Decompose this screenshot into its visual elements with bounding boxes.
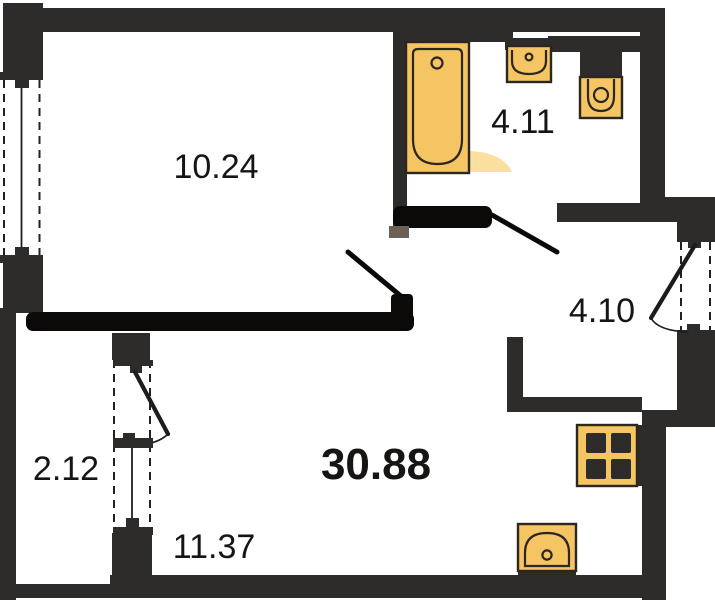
stove-icon [577, 425, 646, 486]
floor-plan: 10.24 4.11 4.10 2.12 11.37 30.88 [0, 0, 715, 600]
balcony-door-window-block [113, 360, 168, 535]
wall-bathroom-bottom-right [557, 203, 647, 222]
living-window [0, 72, 43, 263]
wall-balcony-partition-top-stub [112, 333, 150, 360]
stove-burner-3 [586, 459, 606, 479]
marker-annotations [26, 206, 557, 331]
living-bottom-wall-marker-bar [26, 312, 414, 331]
kitchen-sink-body [518, 524, 576, 571]
wash-basin-body [507, 46, 551, 82]
room-label-living: 10.24 [173, 148, 258, 186]
stove-burner-4 [611, 459, 631, 479]
room-label-bathroom: 4.11 [491, 103, 555, 141]
kitchen-sink-icon [518, 524, 576, 580]
stove-burner-2 [611, 433, 631, 453]
entrance-door [651, 241, 710, 332]
stove-burner-1 [586, 433, 606, 453]
wall-toilet-niche-top [548, 36, 648, 52]
total-area-label: 30.88 [321, 440, 431, 489]
wall-right-above-door [677, 220, 715, 242]
window-tab-bottom [15, 247, 29, 255]
toilet-tank [580, 50, 622, 78]
wall-balcony-partition-bottom-stub [112, 533, 152, 578]
wall-top-left-block [3, 3, 43, 73]
room-label-hallway: 4.10 [569, 292, 635, 330]
entrance-latch-tab [687, 324, 700, 332]
wall-balcony-bottom [0, 584, 114, 598]
wash-basin-icon [505, 38, 553, 82]
wall-hall-kitchen-horizontal [507, 397, 642, 412]
wall-bathroom-top [395, 30, 513, 42]
living-door-leaf-marker [348, 252, 402, 297]
bathtub-shadow-blob [468, 151, 512, 172]
balcony-door-head-plate [113, 360, 153, 366]
wall-right-below-door [677, 330, 715, 427]
toilet-icon [580, 50, 622, 118]
balcony-window-bottom-plate [113, 527, 153, 535]
room-label-kitchen: 11.37 [173, 528, 256, 566]
floor-plan-canvas: 10.24 4.11 4.10 2.12 11.37 30.88 [0, 0, 715, 600]
window-tab-top [15, 80, 29, 88]
balcony-door-leaf [135, 372, 168, 434]
entrance-door-leaf [651, 245, 695, 318]
bathroom-door-marker-bar [393, 206, 492, 228]
bathroom-door-leaf-marker [492, 215, 557, 252]
wall-balcony-left [0, 308, 16, 600]
wall-left-lower-block [3, 263, 43, 313]
wall-bottom [110, 575, 666, 598]
room-label-balcony: 2.12 [33, 450, 99, 488]
window-cap-bottom [0, 255, 43, 263]
balcony-window-tab-top [123, 433, 135, 440]
wall-end-cap [389, 226, 409, 238]
window-cap-top [0, 72, 43, 80]
entrance-door-swing-arc [651, 318, 689, 332]
wall-bathroom-right [640, 30, 665, 200]
wall-top [5, 8, 665, 32]
wall-corridor-top-right [640, 197, 715, 222]
